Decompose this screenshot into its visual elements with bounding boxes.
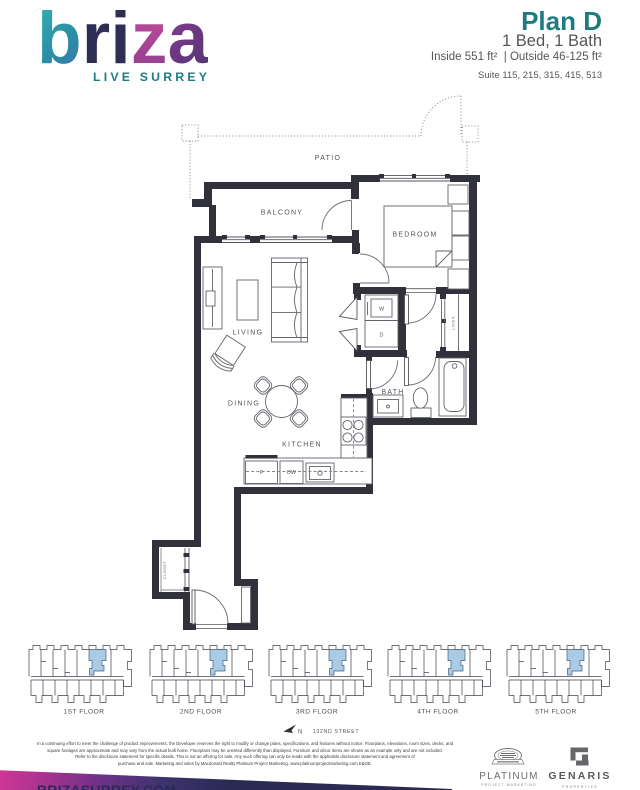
svg-text:2ND FLOOR: 2ND FLOOR [180,709,222,716]
svg-text:LIVING: LIVING [233,330,264,337]
svg-text:PATIO: PATIO [315,155,341,162]
svg-text:DW: DW [287,470,297,476]
svg-text:KITCHEN: KITCHEN [282,442,322,449]
svg-text:5TH FLOOR: 5TH FLOOR [535,709,577,716]
svg-text:LINEN: LINEN [451,316,456,330]
svg-text:1ST FLOOR: 1ST FLOOR [63,709,104,716]
svg-text:BATH: BATH [381,389,404,396]
svg-text:CLOSET: CLOSET [162,561,167,580]
svg-text:BALCONY: BALCONY [261,210,304,217]
svg-text:N: N [298,730,302,736]
svg-text:BEDROOM: BEDROOM [392,232,437,239]
svg-text:DINING: DINING [228,401,260,408]
svg-text:4TH FLOOR: 4TH FLOOR [417,709,459,716]
svg-text:3RD FLOOR: 3RD FLOOR [296,709,338,716]
svg-text:D: D [380,333,384,339]
svg-text:132ND STREET: 132ND STREET [313,729,360,735]
